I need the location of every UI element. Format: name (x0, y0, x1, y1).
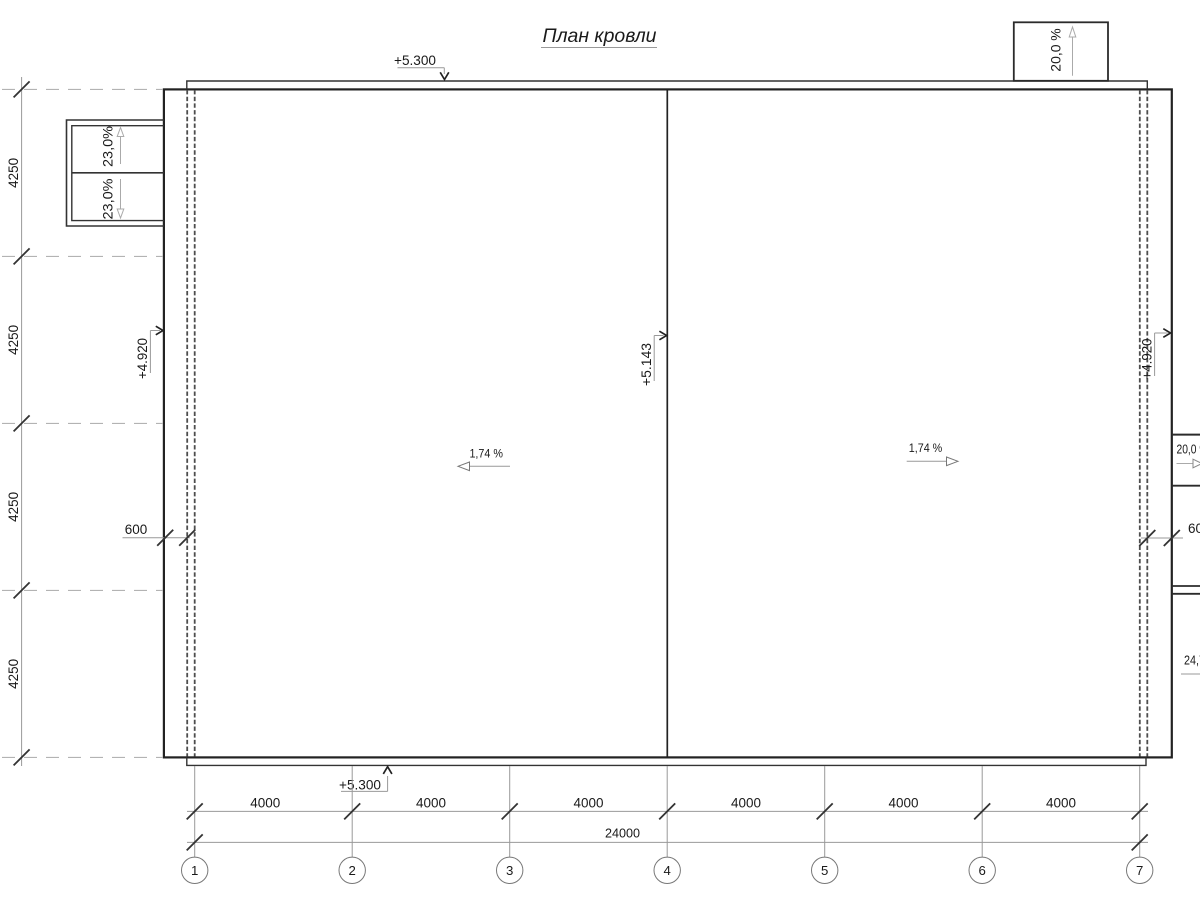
svg-text:3: 3 (506, 863, 513, 878)
svg-text:4: 4 (664, 863, 671, 878)
svg-text:24000: 24000 (605, 826, 640, 841)
svg-text:600: 600 (125, 522, 148, 537)
svg-text:20,0 %: 20,0 % (1048, 28, 1064, 71)
svg-text:+4.920: +4.920 (1139, 338, 1154, 379)
svg-text:1,74 %: 1,74 % (469, 447, 503, 461)
svg-text:+5.143: +5.143 (639, 343, 654, 386)
svg-text:4250: 4250 (6, 325, 21, 355)
svg-text:+5.300: +5.300 (339, 778, 381, 793)
svg-text:4000: 4000 (250, 796, 280, 811)
svg-text:23,0%: 23,0% (100, 179, 116, 220)
svg-text:2: 2 (349, 863, 356, 878)
svg-text:1,74 %: 1,74 % (909, 441, 943, 455)
svg-text:20,0 %: 20,0 % (1177, 443, 1200, 457)
svg-text:4000: 4000 (889, 796, 919, 811)
svg-text:4250: 4250 (6, 158, 21, 188)
svg-text:23,0%: 23,0% (100, 126, 116, 167)
svg-text:4000: 4000 (1046, 796, 1076, 811)
svg-text:7: 7 (1136, 863, 1143, 878)
svg-text:4000: 4000 (416, 796, 446, 811)
svg-text:+4.920: +4.920 (135, 338, 150, 379)
svg-text:План кровли: План кровли (543, 26, 657, 47)
svg-text:+5.300: +5.300 (394, 53, 436, 68)
svg-text:4250: 4250 (6, 659, 21, 689)
svg-text:5: 5 (821, 863, 828, 878)
svg-text:1: 1 (191, 863, 198, 878)
svg-text:6: 6 (979, 863, 986, 878)
svg-text:24,7: 24,7 (1184, 654, 1200, 668)
svg-text:4000: 4000 (574, 796, 604, 811)
svg-text:4250: 4250 (6, 492, 21, 522)
svg-text:600: 600 (1188, 521, 1200, 536)
svg-text:4000: 4000 (731, 796, 761, 811)
